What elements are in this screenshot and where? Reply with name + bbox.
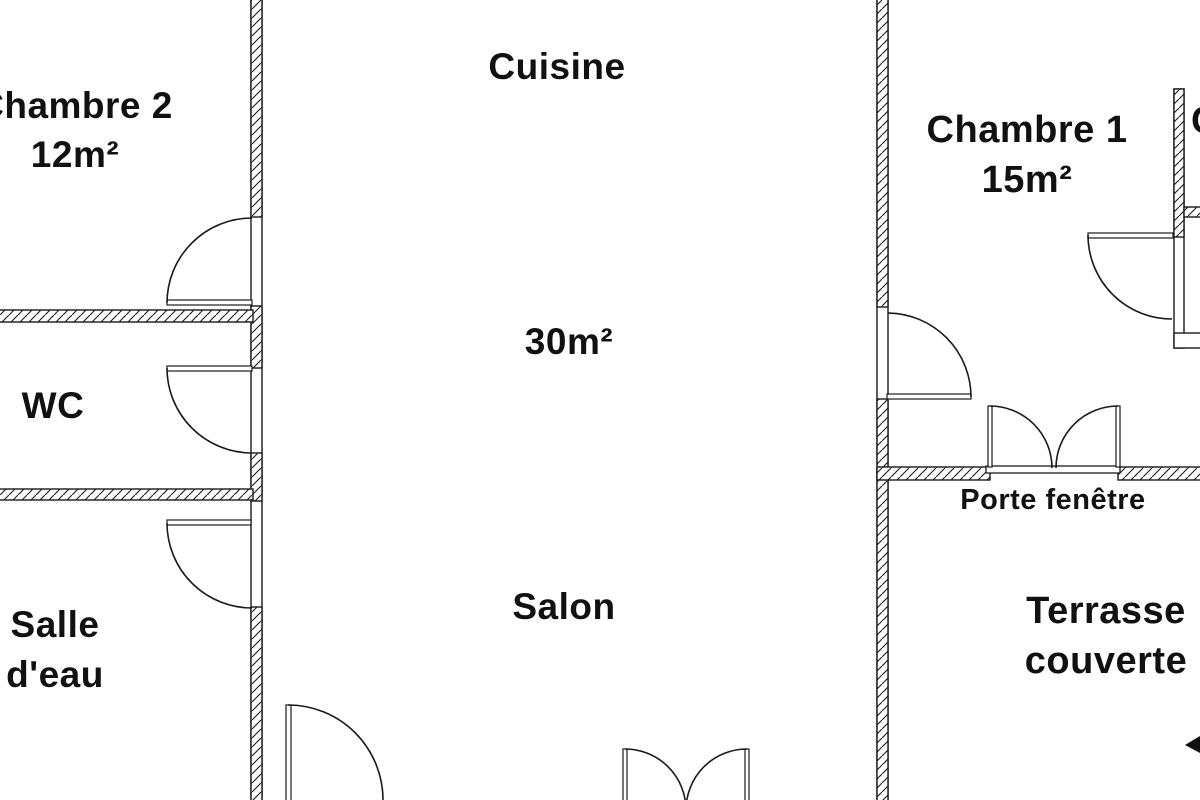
room-name-chambre2: Chambre 2 bbox=[0, 81, 195, 130]
french-door-leaf-salon-right bbox=[745, 749, 749, 800]
wall-left-segment-bottom bbox=[251, 607, 262, 800]
room-label-salon: Salon bbox=[464, 582, 664, 632]
room-area-chambre2: 12m² bbox=[0, 130, 195, 179]
wall-right-return-top bbox=[1184, 207, 1200, 217]
door-arc-wc bbox=[167, 368, 252, 453]
wall-center-segment-bottom bbox=[877, 399, 888, 800]
door-leaf-chambre2 bbox=[167, 300, 252, 305]
porte-fenetre-threshold bbox=[986, 466, 1120, 473]
french-door-leaf-salon-left bbox=[623, 749, 627, 800]
wall-chambre2-wc-divider bbox=[0, 310, 253, 322]
room-label-partial-right: C bbox=[1191, 96, 1200, 146]
area-label-living: 30m² bbox=[469, 317, 669, 367]
wall-right-corner-return bbox=[1174, 333, 1200, 348]
french-door-arc-terrace-left bbox=[990, 406, 1052, 468]
door-leaf-salon bbox=[286, 705, 291, 800]
room-label-chambre1: Chambre 1 15m² bbox=[887, 105, 1167, 205]
wall-wc-salledeau-divider bbox=[0, 489, 253, 500]
french-door-leaf-terrace-right bbox=[1116, 406, 1120, 467]
annotation-porte-fenetre: Porte fenêtre bbox=[953, 484, 1153, 516]
room-label-salledeau: Salle d'eau bbox=[0, 600, 120, 700]
room-label-wc: WC bbox=[0, 381, 153, 431]
wall-terrace-left bbox=[877, 467, 990, 480]
door-arc-chambre1-closet bbox=[1088, 235, 1172, 319]
door-arc-chambre1-entry bbox=[888, 313, 971, 397]
room-label-cuisine: Cuisine bbox=[457, 42, 657, 92]
door-arc-chambre2 bbox=[167, 218, 252, 303]
room-label-terrasse: Terrasse couverte bbox=[1011, 586, 1200, 686]
north-arrow-partial-icon bbox=[1185, 736, 1200, 753]
room-area-chambre1: 15m² bbox=[887, 155, 1167, 205]
door-leaf-wc bbox=[167, 366, 252, 371]
door-arc-salledeau bbox=[167, 523, 252, 608]
wall-terrace-right bbox=[1118, 467, 1200, 480]
french-door-leaf-terrace-left bbox=[988, 406, 992, 467]
room-name-chambre1: Chambre 1 bbox=[887, 105, 1167, 155]
floor-plan: Chambre 2 12m² Cuisine 30m² WC Salle d'e… bbox=[0, 0, 1200, 800]
wall-right-segment-top bbox=[1174, 89, 1184, 237]
door-leaf-chambre1-closet bbox=[1088, 233, 1173, 238]
french-door-arc-terrace-right bbox=[1056, 406, 1118, 468]
door-leaf-salledeau bbox=[167, 520, 251, 525]
room-label-chambre2: Chambre 2 12m² bbox=[0, 81, 195, 179]
door-leaf-chambre1-entry bbox=[887, 394, 971, 399]
french-door-arc-salon-right bbox=[686, 749, 747, 800]
wall-left-segment-top bbox=[251, 0, 262, 217]
door-arc-salon bbox=[288, 705, 383, 800]
french-door-arc-salon-left bbox=[625, 749, 686, 800]
